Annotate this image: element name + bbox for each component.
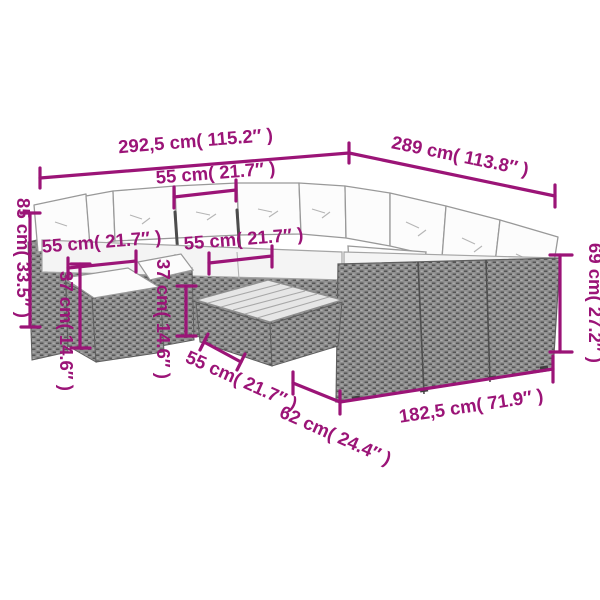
dimension-diagram: 292,5 cm( 115.2″ ) 289 cm( 113.8″ ) 55 c…: [0, 0, 600, 600]
dim-total-width-label: 292,5 cm( 115.2″ ): [117, 124, 273, 157]
diagram-canvas: 292,5 cm( 115.2″ ) 289 cm( 113.8″ ) 55 c…: [0, 0, 600, 600]
dim-front-height-label: 69 cm( 27.2″ ): [585, 243, 600, 363]
sofa-right-front: [336, 258, 560, 402]
dim-total-depth-label: 289 cm( 113.8″ ): [390, 131, 531, 179]
dim-section-depth-label: 62 cm( 24.4″ ): [277, 401, 395, 469]
dim-stool-left-height-label: 37 cm( 14.6″ ): [56, 271, 77, 391]
dim-back-height-label: 85 cm( 33.5″ ): [13, 198, 34, 318]
dim-stool-mid-height-label: 37 cm( 14.6″ ): [153, 259, 174, 379]
